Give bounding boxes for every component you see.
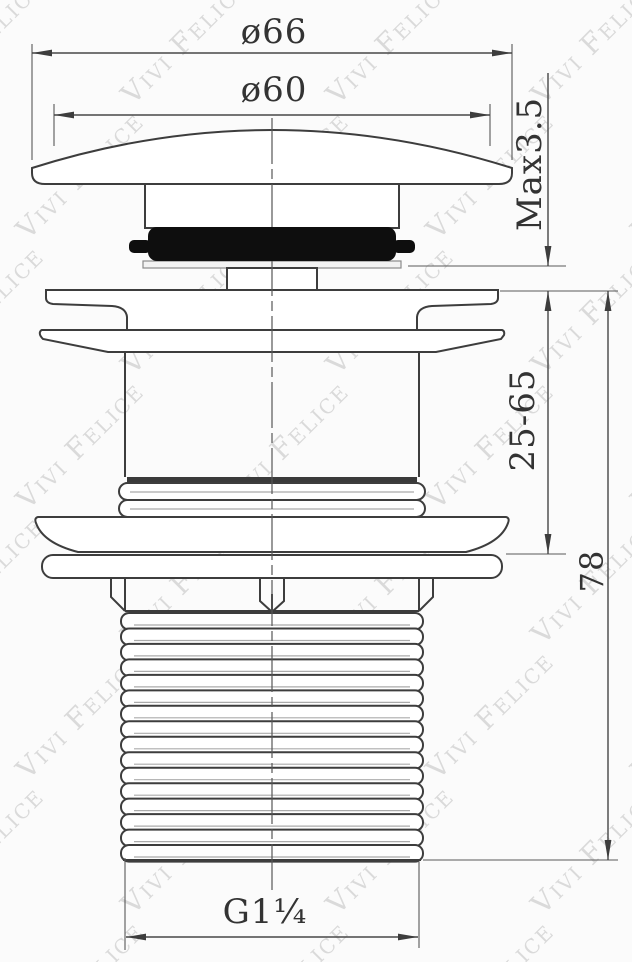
gasket-body	[148, 227, 396, 261]
technical-drawing-canvas: Vivi FeliceVivi FeliceVivi FeliceVivi Fe…	[0, 0, 632, 962]
dimension-arrowhead	[605, 291, 612, 311]
dimension-arrowhead	[545, 291, 552, 311]
dimension-arrowhead	[545, 246, 552, 266]
dim-label-total-height: 78	[573, 550, 611, 593]
dim-label-install-range: 25-65	[503, 368, 543, 471]
gasket-tab-right	[393, 240, 415, 253]
dimension-arrowhead	[470, 112, 490, 119]
gasket-tab-left	[129, 240, 151, 253]
dimension-arrowhead	[545, 534, 552, 554]
dimension-arrowhead	[126, 934, 146, 941]
dim-label-thread-size: G1¼	[223, 892, 308, 932]
dimension-arrowhead	[32, 50, 52, 57]
dim-label-outer-diameter: ø66	[241, 12, 308, 52]
rubber-gasket	[129, 227, 415, 261]
dimension-arrowhead	[605, 840, 612, 860]
dimension-arrowhead	[492, 50, 512, 57]
dimension-arrowhead	[54, 112, 74, 119]
dim-label-max-thickness: Max3.5	[510, 97, 550, 231]
dimension-arrowhead	[398, 934, 418, 941]
dim-label-inner-diameter: ø60	[241, 70, 308, 110]
